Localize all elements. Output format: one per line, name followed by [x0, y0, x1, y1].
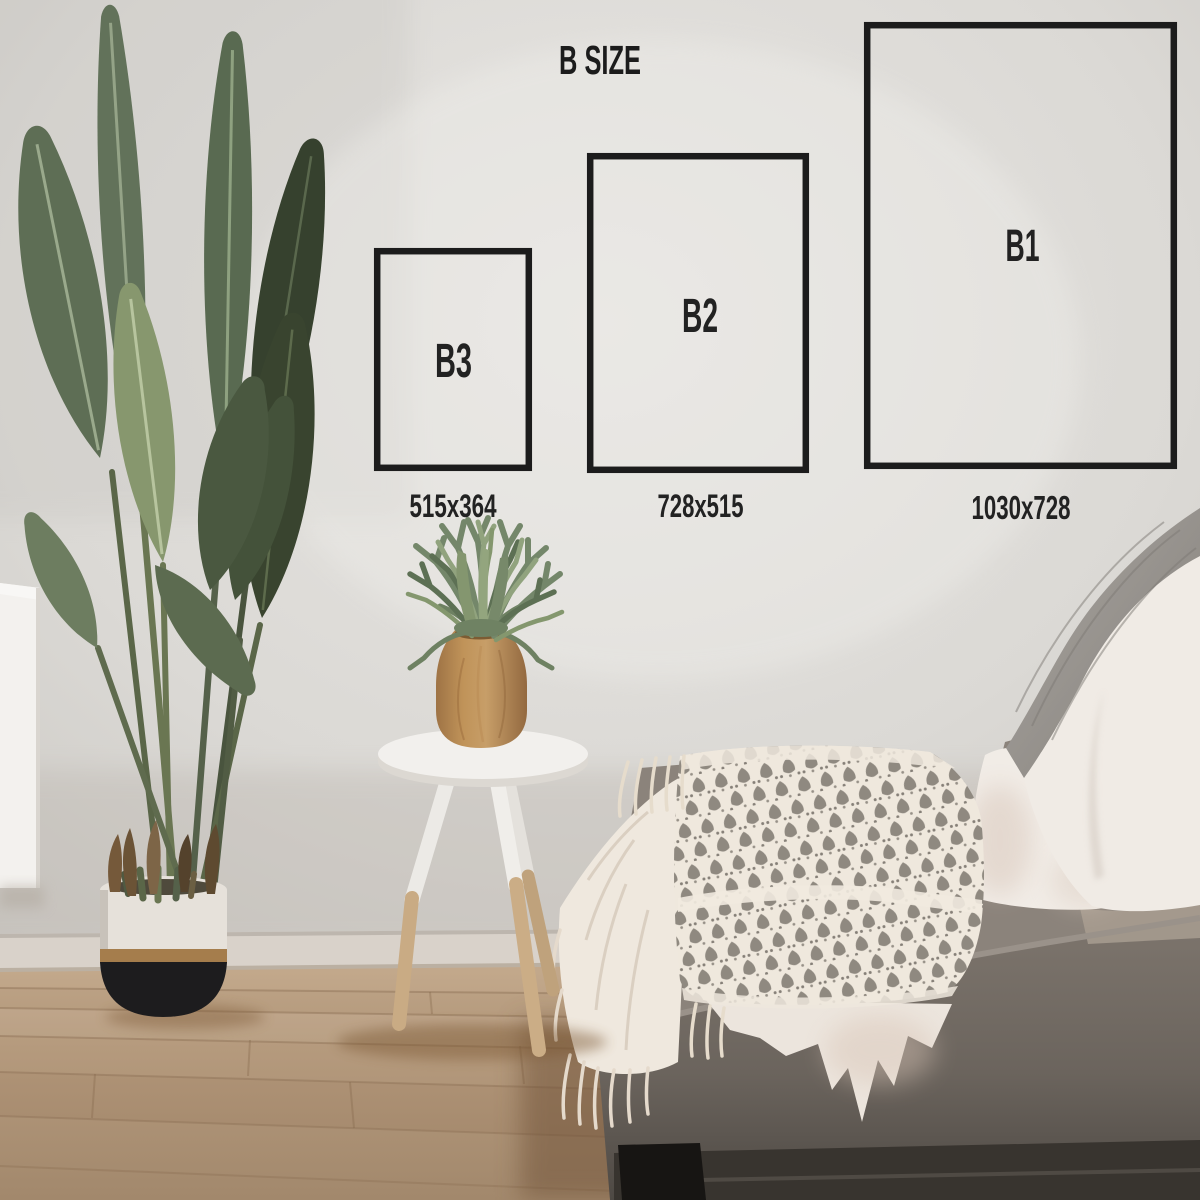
svg-text:728x515: 728x515: [658, 488, 744, 524]
svg-text:B1: B1: [1006, 220, 1040, 271]
svg-text:515x364: 515x364: [410, 488, 497, 524]
svg-text:B3: B3: [435, 335, 472, 388]
svg-text:1030x728: 1030x728: [972, 489, 1071, 526]
svg-text:B SIZE: B SIZE: [559, 37, 641, 83]
svg-text:B2: B2: [682, 290, 718, 343]
